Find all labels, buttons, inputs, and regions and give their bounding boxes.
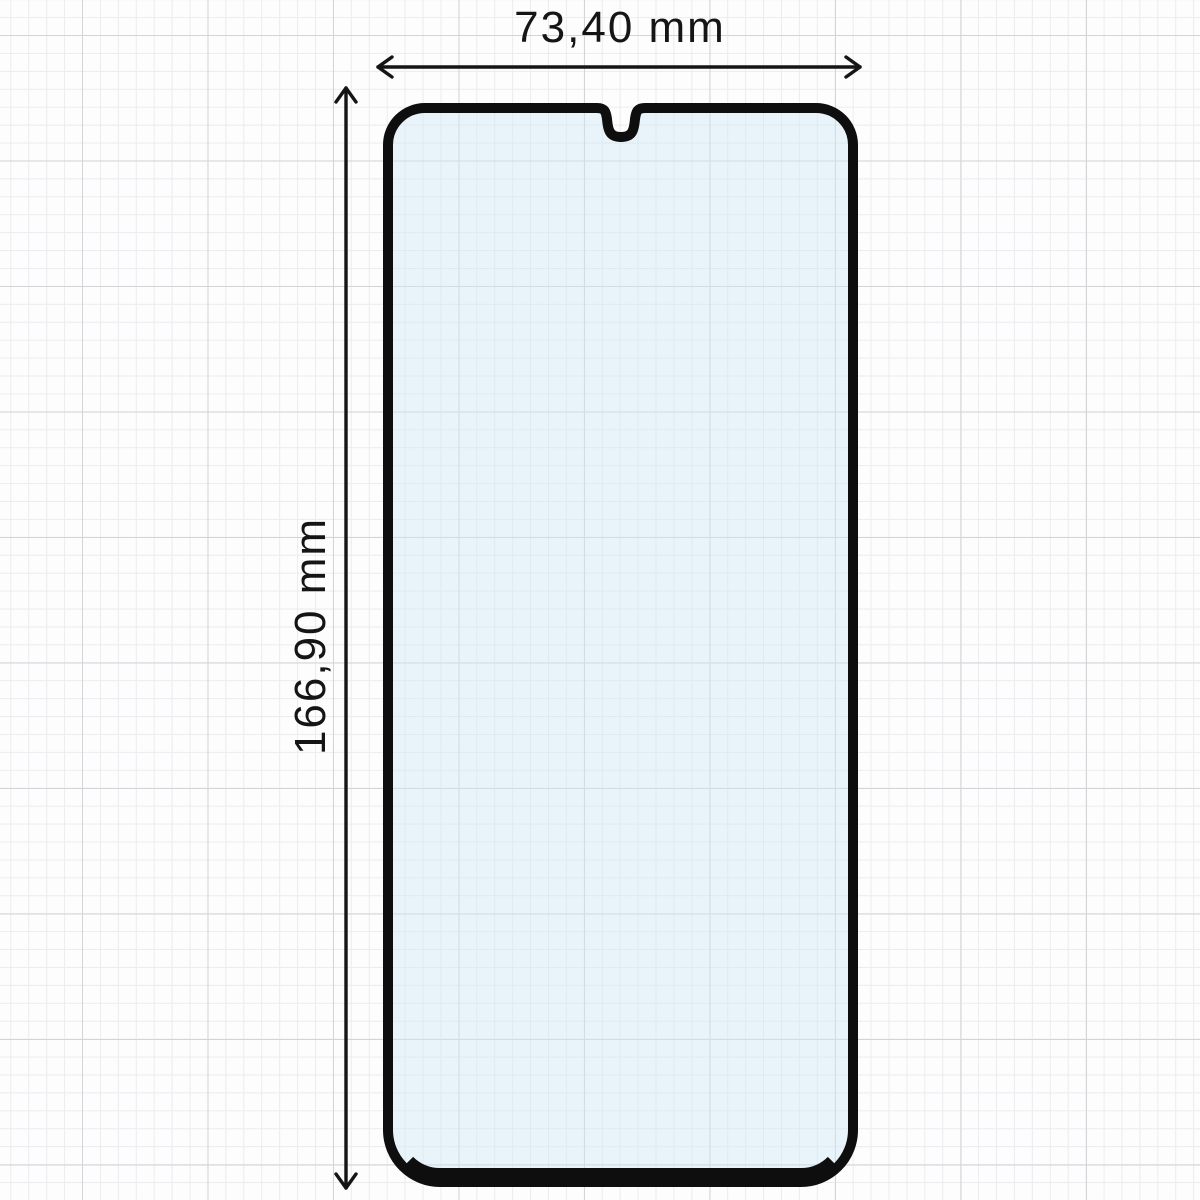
- screen-protector: [378, 98, 863, 1193]
- diagram-canvas: 73,40 mm 166,90 mm: [0, 0, 1200, 1200]
- width-dimension-label: 73,40 mm: [514, 6, 726, 50]
- screen-protector-glass-outline: [388, 108, 853, 1182]
- width-dimension-arrow-icon: [374, 53, 864, 81]
- height-dimension-label: 166,90 mm: [289, 517, 333, 755]
- height-dimension-arrow-icon: [332, 84, 360, 1192]
